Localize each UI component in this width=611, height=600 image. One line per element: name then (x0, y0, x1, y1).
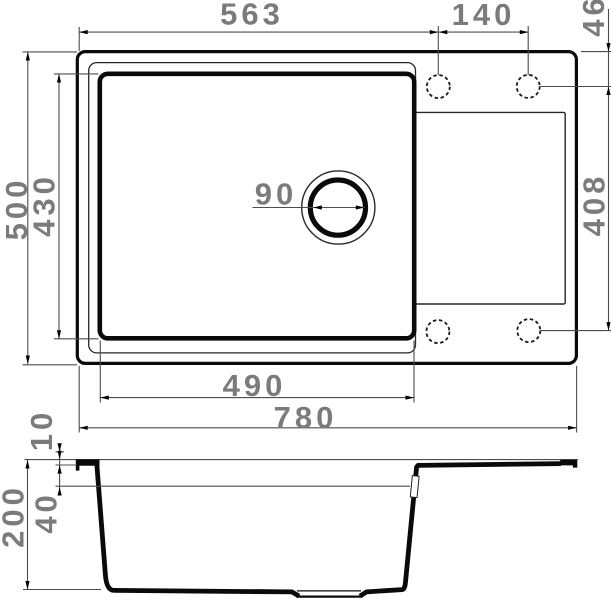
svg-text:140: 140 (452, 0, 516, 32)
svg-text:10: 10 (24, 409, 59, 451)
svg-text:780: 780 (274, 400, 338, 435)
svg-text:40: 40 (29, 491, 64, 533)
svg-text:430: 430 (27, 173, 62, 237)
svg-text:563: 563 (220, 0, 284, 32)
svg-text:490: 490 (223, 368, 287, 403)
svg-text:90: 90 (255, 177, 297, 212)
svg-text:200: 200 (0, 484, 31, 548)
svg-text:408: 408 (577, 173, 611, 237)
svg-text:46: 46 (576, 0, 611, 37)
